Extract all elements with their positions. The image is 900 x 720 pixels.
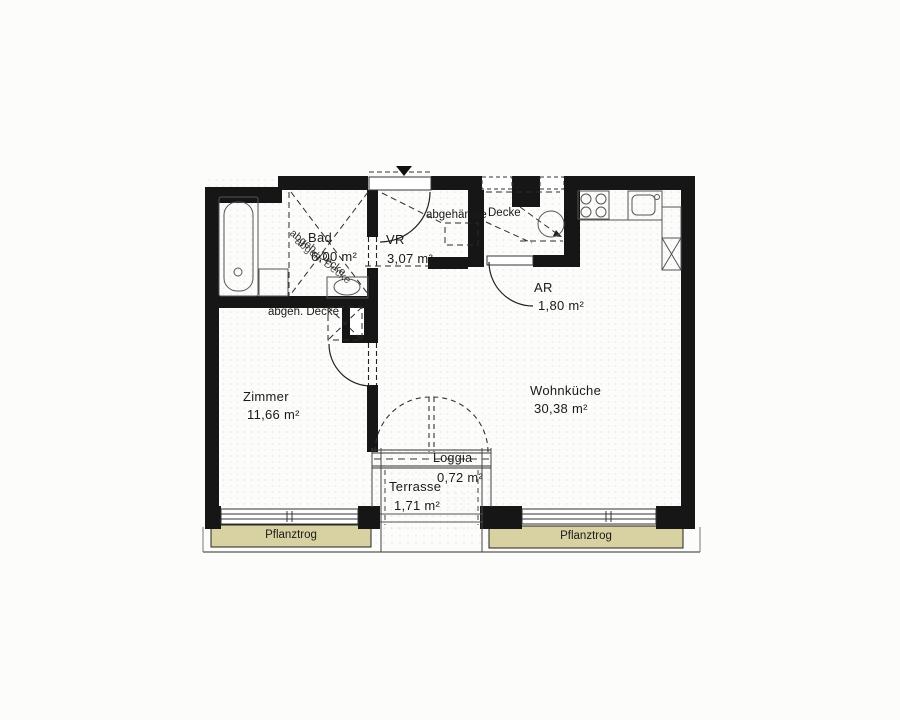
boiler-icon — [538, 211, 564, 237]
cabinet-icon — [662, 207, 681, 238]
ceiling-note-zimmer: abgeh. Decke — [268, 306, 339, 318]
room-area-terrasse: 1,71 m² — [394, 499, 440, 513]
floor-plan-drawing — [0, 0, 900, 720]
ar-door — [487, 256, 533, 306]
window-zimmer — [221, 509, 358, 524]
vr-ar-wall — [468, 190, 484, 267]
vr-south-wall — [428, 257, 468, 269]
room-area-ar: 1,80 m² — [538, 299, 584, 313]
bottom-pier-4 — [656, 506, 695, 529]
sink-basin — [632, 195, 655, 215]
zimmer-door-swing — [329, 344, 371, 386]
right-wall — [681, 176, 695, 529]
kitchen-fixtures — [578, 191, 681, 270]
bottom-pier-2 — [358, 506, 380, 529]
planter-label-left: Pflanztrog — [221, 529, 361, 541]
ar-door-swing — [489, 262, 533, 306]
room-area-loggia: 0,72 m² — [437, 471, 483, 485]
divider-wall-a — [367, 268, 378, 302]
ceiling-note-word-1: abgehängte — [426, 209, 487, 221]
top-wall-main-2 — [431, 176, 482, 190]
left-wall — [205, 187, 219, 529]
room-label-zimmer: Zimmer — [243, 390, 289, 404]
bathtub-inner — [224, 202, 253, 291]
room-area-vr: 3,07 m² — [387, 252, 433, 266]
window-wohnkueche — [522, 509, 656, 524]
room-label-wohnkueche: Wohnküche — [530, 384, 601, 398]
top-wall-main-1 — [278, 176, 368, 190]
loggia-band — [372, 450, 491, 468]
ceiling-arrowhead-icon — [553, 230, 562, 237]
terrace-threshold — [380, 514, 483, 522]
ceiling-note-word-2: Decke — [488, 207, 521, 219]
top-wall-main-3 — [564, 176, 695, 190]
room-label-terrasse: Terrasse — [389, 480, 441, 494]
room-area-zimmer: 11,66 m² — [247, 408, 300, 422]
entrance-door — [369, 166, 431, 242]
zimmer-door — [329, 343, 377, 386]
sink-faucet — [655, 195, 660, 200]
floor-plan-page: Bad 6,00 m² abgeh. Decke abgeh. Decke VR… — [0, 0, 900, 720]
planter-label-right: Pflanztrog — [516, 530, 656, 542]
bad-vr-wall — [367, 190, 378, 237]
room-label-loggia: Loggia — [433, 452, 472, 465]
washer-icon — [259, 269, 288, 296]
room-area-wohnkueche: 30,38 m² — [534, 402, 588, 416]
bad-door-opening — [369, 237, 377, 268]
room-label-vr: VR — [386, 233, 405, 247]
ar-right-wall — [564, 176, 580, 267]
bottom-pier-1 — [205, 506, 221, 529]
bathtub-drain-icon — [234, 268, 242, 276]
bottom-pier-3 — [480, 506, 522, 529]
french-door — [375, 397, 488, 452]
entrance-arrow-icon — [396, 166, 412, 176]
room-label-ar: AR — [534, 281, 553, 295]
